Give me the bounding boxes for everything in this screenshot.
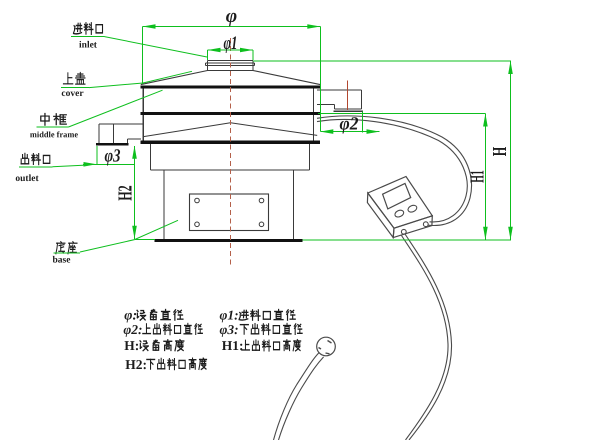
svg-text:H:: H: <box>124 338 139 353</box>
svg-text:φ1: φ1 <box>223 33 237 54</box>
svg-text:φ1:: φ1: <box>219 308 238 323</box>
svg-text:φ3: φ3 <box>104 146 120 166</box>
svg-text:outlet: outlet <box>15 174 39 184</box>
svg-text:H1:: H1: <box>222 338 244 353</box>
svg-text:inlet: inlet <box>79 40 98 50</box>
svg-text:H: H <box>489 146 511 156</box>
svg-text:base: base <box>53 255 71 265</box>
svg-text:φ2:: φ2: <box>123 322 142 337</box>
svg-text:middle frame: middle frame <box>30 130 78 139</box>
svg-text:H1: H1 <box>467 170 489 183</box>
svg-text:φ: φ <box>226 6 237 27</box>
svg-text:φ2: φ2 <box>339 114 358 134</box>
svg-text:H2: H2 <box>114 185 136 201</box>
svg-text:cover: cover <box>61 89 84 99</box>
svg-text:φ3:: φ3: <box>219 322 238 337</box>
svg-text:H2:: H2: <box>125 357 147 372</box>
